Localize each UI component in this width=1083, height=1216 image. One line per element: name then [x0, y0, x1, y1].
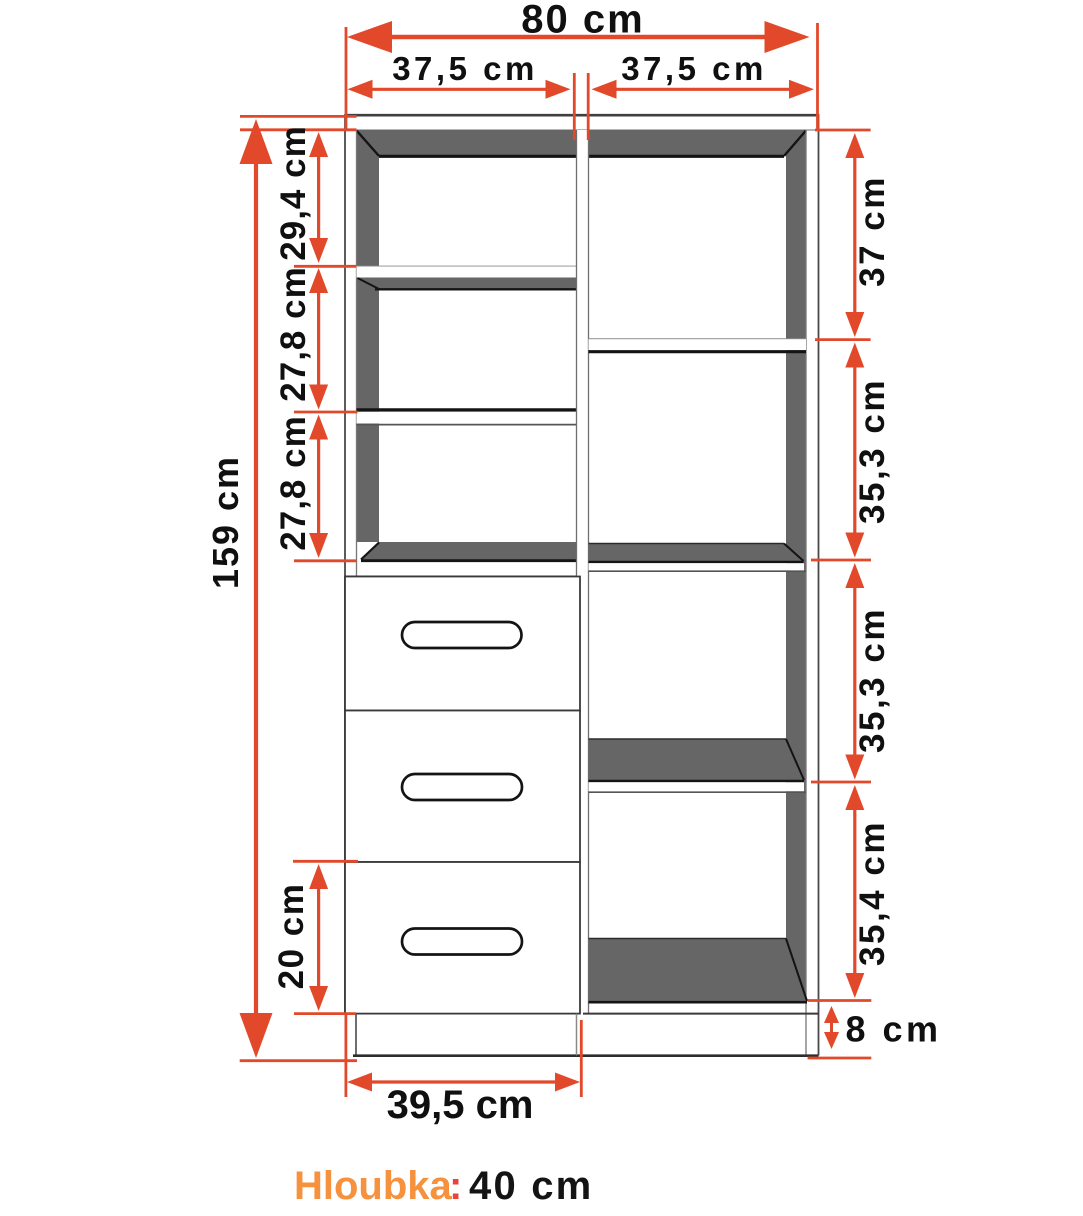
svg-text:37,5 cm: 37,5 cm	[621, 50, 767, 87]
svg-text:27,8 cm: 27,8 cm	[274, 415, 313, 550]
svg-text:39,5 cm: 39,5 cm	[387, 1083, 534, 1127]
svg-text:35,3 cm: 35,3 cm	[853, 607, 892, 753]
svg-text:37,5 cm: 37,5 cm	[392, 50, 538, 87]
svg-text:80 cm: 80 cm	[521, 0, 644, 42]
svg-text:159 cm: 159 cm	[205, 455, 246, 589]
svg-text:Hloubka:40 cm: Hloubka:40 cm	[294, 1164, 593, 1208]
svg-text:29,4 cm: 29,4 cm	[274, 125, 313, 260]
svg-text:27,8 cm: 27,8 cm	[274, 266, 313, 401]
svg-text:20 cm: 20 cm	[272, 883, 311, 990]
svg-text:35,3 cm: 35,3 cm	[853, 378, 892, 524]
svg-text:8 cm: 8 cm	[846, 1009, 942, 1050]
svg-text:37 cm: 37 cm	[853, 175, 892, 287]
svg-text:35,4 cm: 35,4 cm	[853, 820, 892, 966]
